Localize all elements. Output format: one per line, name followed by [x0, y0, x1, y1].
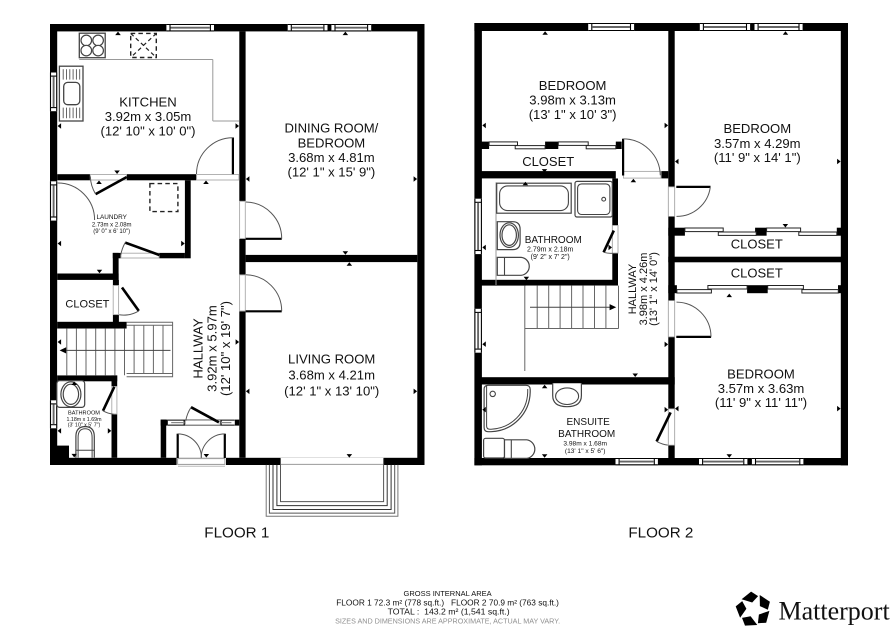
svg-text:CLOSET: CLOSET: [522, 154, 574, 169]
svg-text:BEDROOM: BEDROOM: [723, 121, 791, 136]
svg-text:KITCHEN: KITCHEN: [119, 95, 176, 110]
svg-text:BEDROOM: BEDROOM: [298, 135, 366, 150]
svg-text:(12' 1" x 13' 10"): (12' 1" x 13' 10"): [284, 384, 379, 399]
svg-text:BATHROOM: BATHROOM: [525, 235, 582, 246]
svg-text:FLOOR 2: FLOOR 2: [628, 525, 693, 542]
svg-text:BEDROOM: BEDROOM: [727, 367, 795, 382]
svg-text:FLOOR 1: FLOOR 1: [204, 525, 269, 542]
svg-text:3.92m x 3.05m: 3.92m x 3.05m: [105, 109, 192, 124]
svg-text:(12' 1" x 15' 9"): (12' 1" x 15' 9"): [287, 165, 375, 180]
svg-text:BATHROOM: BATHROOM: [558, 429, 615, 440]
svg-text:3.57m x 4.29m: 3.57m x 4.29m: [714, 136, 801, 151]
svg-text:2.79m x 2.18m: 2.79m x 2.18m: [527, 246, 573, 253]
svg-text:2.73m x 2.08m: 2.73m x 2.08m: [92, 222, 132, 228]
svg-text:(12' 10" x 19' 7"): (12' 10" x 19' 7"): [218, 301, 233, 396]
svg-text:3.98m x 3.13m: 3.98m x 3.13m: [529, 93, 616, 108]
svg-text:CLOSET: CLOSET: [731, 266, 783, 281]
svg-text:DINING ROOM/: DINING ROOM/: [284, 121, 378, 136]
svg-text:3.68m x 4.21m: 3.68m x 4.21m: [288, 367, 375, 382]
svg-text:CLOSET: CLOSET: [731, 236, 783, 251]
svg-text:LIVING ROOM: LIVING ROOM: [288, 352, 375, 367]
svg-text:(3' 10" x 5' 7"): (3' 10" x 5' 7"): [68, 423, 101, 429]
svg-text:(9' 2" x 7' 2"): (9' 2" x 7' 2"): [531, 254, 570, 261]
svg-text:3.68m x 4.81m: 3.68m x 4.81m: [288, 150, 375, 165]
svg-text:CLOSET: CLOSET: [65, 298, 109, 310]
svg-text:(13' 1" x 14' 0"): (13' 1" x 14' 0"): [648, 252, 660, 326]
svg-text:(11' 9" x 14' 1"): (11' 9" x 14' 1"): [714, 150, 801, 165]
svg-text:ENSUITE: ENSUITE: [567, 417, 611, 428]
svg-text:3.98m x 1.68m: 3.98m x 1.68m: [563, 440, 607, 447]
svg-text:HALLWAY: HALLWAY: [190, 318, 205, 378]
svg-text:Matterport: Matterport: [779, 596, 891, 625]
svg-text:BATHROOM: BATHROOM: [68, 410, 100, 416]
svg-text:LAUNDRY: LAUNDRY: [96, 214, 127, 221]
svg-text:(11' 9" x 11' 11"): (11' 9" x 11' 11"): [715, 395, 807, 410]
svg-text:3.92m x 5.97m: 3.92m x 5.97m: [204, 305, 219, 392]
svg-text:(13' 1" x 10' 3"): (13' 1" x 10' 3"): [529, 107, 617, 122]
svg-text:(12' 10" x 10' 0"): (12' 10" x 10' 0"): [100, 123, 195, 138]
svg-text:TOTAL : 143.2 m² (1,541 sq.ft: TOTAL : 143.2 m² (1,541 sq.ft.): [388, 606, 510, 616]
svg-text:BEDROOM: BEDROOM: [539, 78, 607, 93]
svg-text:SIZES AND DIMENSIONS ARE APPRO: SIZES AND DIMENSIONS ARE APPROXIMATE, AC…: [335, 616, 560, 625]
svg-text:(13' 1" x 5' 6"): (13' 1" x 5' 6"): [565, 448, 606, 455]
svg-text:(9' 0" x 6' 10"): (9' 0" x 6' 10"): [93, 229, 130, 235]
svg-text:3.57m x 3.63m: 3.57m x 3.63m: [718, 381, 805, 396]
